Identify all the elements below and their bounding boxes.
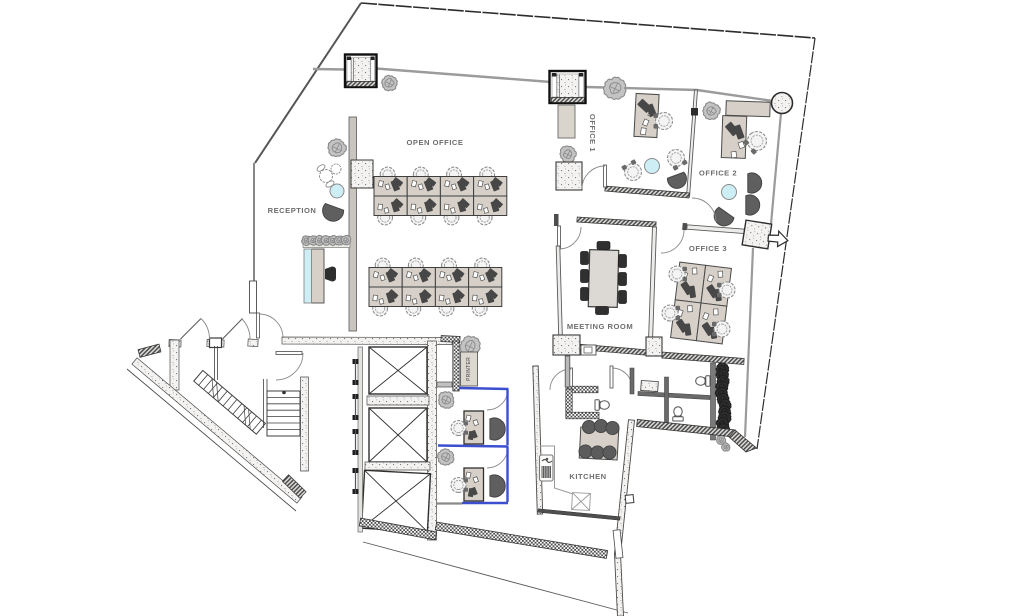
svg-text:OFFICE 1: OFFICE 1	[588, 114, 597, 152]
svg-text:OPEN OFFICE: OPEN OFFICE	[407, 138, 464, 147]
svg-text:KITCHEN: KITCHEN	[569, 472, 606, 481]
svg-text:OFFICE 3: OFFICE 3	[689, 244, 727, 253]
svg-text:RECEPTION: RECEPTION	[268, 206, 317, 215]
svg-text:MEETING ROOM: MEETING ROOM	[567, 322, 633, 331]
svg-text:OFFICE 2: OFFICE 2	[699, 169, 737, 178]
svg-text:PRINTER: PRINTER	[466, 357, 472, 381]
